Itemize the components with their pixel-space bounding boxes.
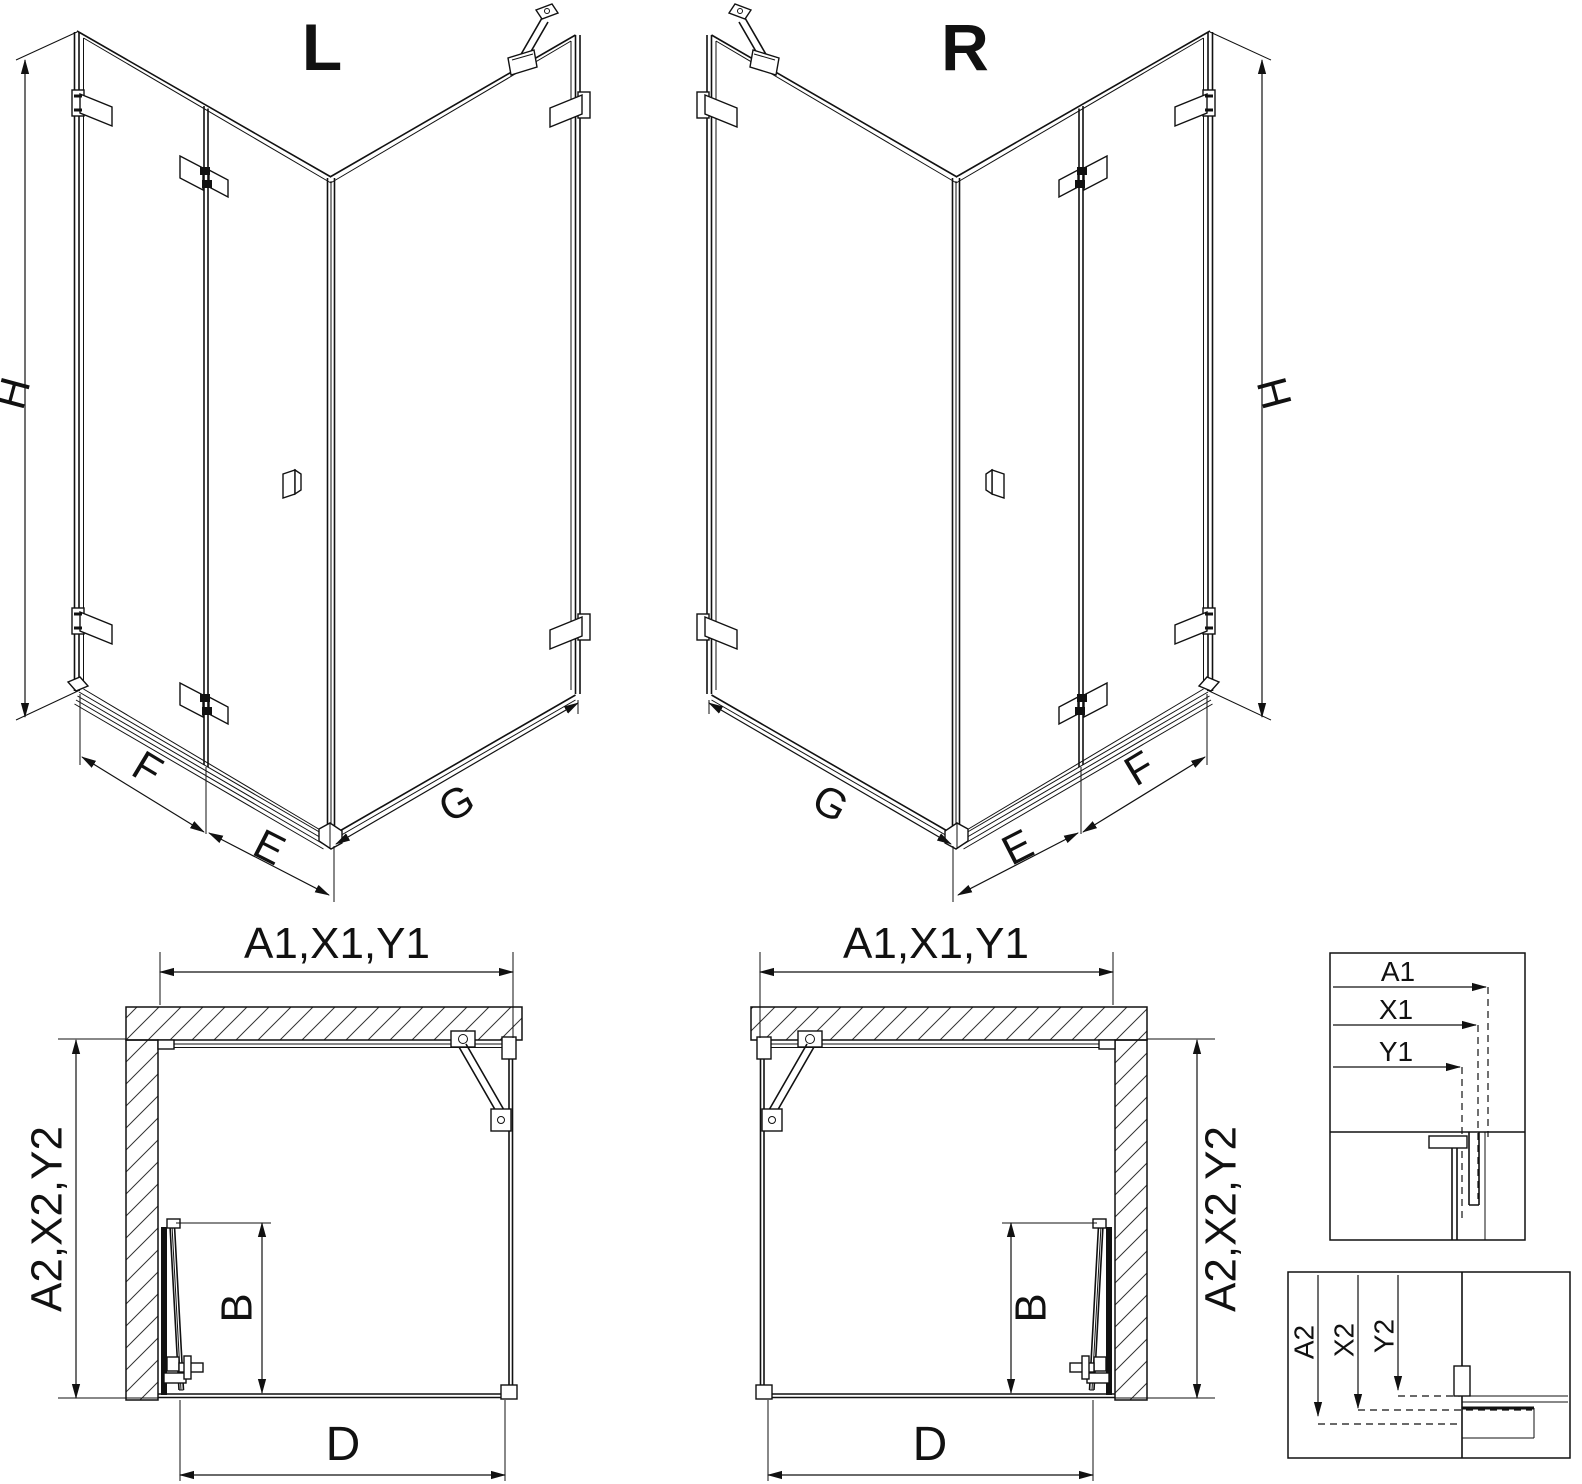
iso-view-left: L H F E G: [0, 4, 590, 902]
dim-label-opening-left-plan: D: [326, 1418, 361, 1471]
dim-label-g-right: G: [805, 775, 856, 832]
wall-hatch-side-left-plan: [126, 1040, 158, 1400]
dim-label-g-left: G: [431, 775, 482, 832]
variant-label-right: R: [941, 10, 989, 84]
detail-depth-inset: A2 X2 Y2: [1288, 1272, 1570, 1458]
plan-view-left: A1,X1,Y1 A2,X2,Y2 B D: [23, 919, 522, 1481]
dim-label-depth-right-plan: A2,X2,Y2: [1197, 1126, 1246, 1312]
inset-label-a2: A2: [1288, 1325, 1319, 1359]
dim-label-height-left: H: [0, 372, 39, 413]
dim-label-depth-left-plan: A2,X2,Y2: [23, 1126, 72, 1312]
dim-label-door-right-plan: B: [1007, 1293, 1056, 1322]
dim-label-width-right-plan: A1,X1,Y1: [843, 919, 1029, 968]
variant-label-left: L: [302, 10, 342, 84]
inset-label-x2: X2: [1328, 1323, 1359, 1357]
dim-label-e-right: E: [994, 820, 1040, 875]
shower-enclosure-diagram: L H F E G R H F E G A1,X1,Y1 A2,X2,Y2 B …: [0, 0, 1582, 1484]
technical-drawing-page: L H F E G R H F E G A1,X1,Y1 A2,X2,Y2 B …: [0, 0, 1582, 1484]
inset-label-a1: A1: [1381, 956, 1415, 987]
detail-width-inset: A1 X1 Y1: [1330, 953, 1525, 1240]
inset-label-x1: X1: [1379, 994, 1413, 1025]
plan-view-right: A1,X1,Y1 A2,X2,Y2 B D: [751, 919, 1246, 1481]
dim-label-e-left: E: [246, 820, 292, 875]
inset-label-y2: Y2: [1368, 1319, 1399, 1353]
dim-label-height-right: H: [1248, 372, 1301, 413]
dim-label-opening-right-plan: D: [913, 1418, 948, 1471]
iso-view-right: R H F E G: [697, 4, 1301, 902]
dim-label-width-left-plan: A1,X1,Y1: [244, 919, 430, 968]
dim-label-door-left-plan: B: [213, 1293, 262, 1322]
inset-label-y1: Y1: [1379, 1036, 1413, 1067]
iso-view-right-geometry: [697, 4, 1271, 902]
iso-view-left-geometry: [16, 4, 590, 902]
wall-hatch-side-right-plan: [1115, 1040, 1147, 1400]
